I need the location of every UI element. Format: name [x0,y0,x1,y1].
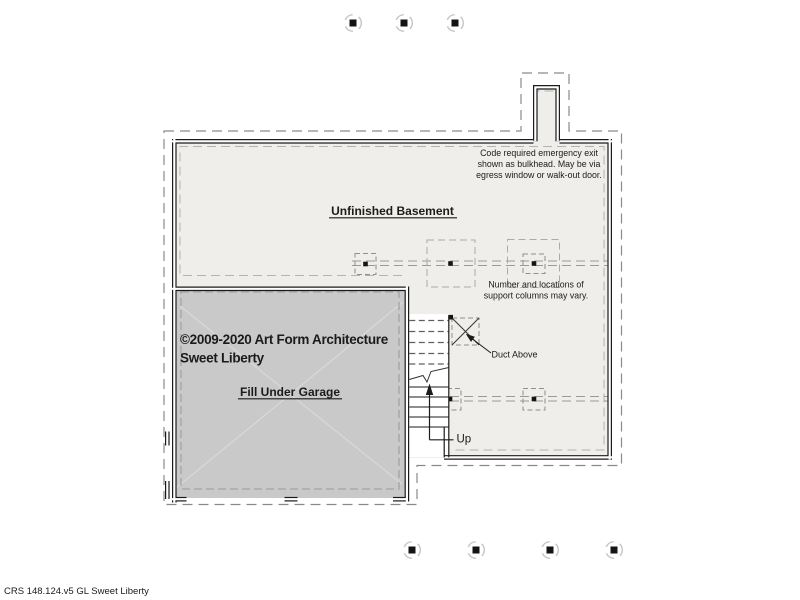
registration-mark [345,15,362,32]
floor-plan-drawing: Unfinished Basement Code required emerge… [0,0,800,600]
emergency-exit-note: Code required emergency exit shown as bu… [476,148,602,180]
floor-plan: Unfinished Basement Code required emerge… [164,73,622,505]
svg-text:shown as bulkhead. May be via: shown as bulkhead. May be via [478,159,601,169]
garage-label: Fill Under Garage [240,385,340,399]
registration-mark [542,542,559,559]
support-columns-note: Number and locations of support columns … [484,280,588,301]
basement-label: Unfinished Basement [331,204,454,218]
registration-mark [606,542,623,559]
svg-text:support columns may vary.: support columns may vary. [484,291,588,301]
registration-mark [447,15,464,32]
registration-marks-top [345,15,464,32]
registration-mark [396,15,413,32]
svg-text:Number and locations of: Number and locations of [488,280,584,290]
support-column [448,261,453,266]
floor-plan-canvas: Unfinished Basement Code required emerge… [0,0,800,600]
bulkhead-floor [534,86,559,141]
copyright-line1: ©2009-2020 Art Form Architecture [180,332,389,347]
registration-mark [404,542,421,559]
svg-text:egress window or walk-out door: egress window or walk-out door. [476,170,602,180]
up-label: Up [457,434,472,446]
duct-above-label: Duct Above [492,350,538,360]
sheet-code: CRS 148.124.v5 GL Sweet Liberty [4,586,149,597]
svg-text:Code required emergency exit: Code required emergency exit [480,148,598,158]
registration-mark [468,542,485,559]
registration-marks-bottom [404,542,623,559]
copyright-line2: Sweet Liberty [180,351,265,366]
stairs [409,314,453,457]
